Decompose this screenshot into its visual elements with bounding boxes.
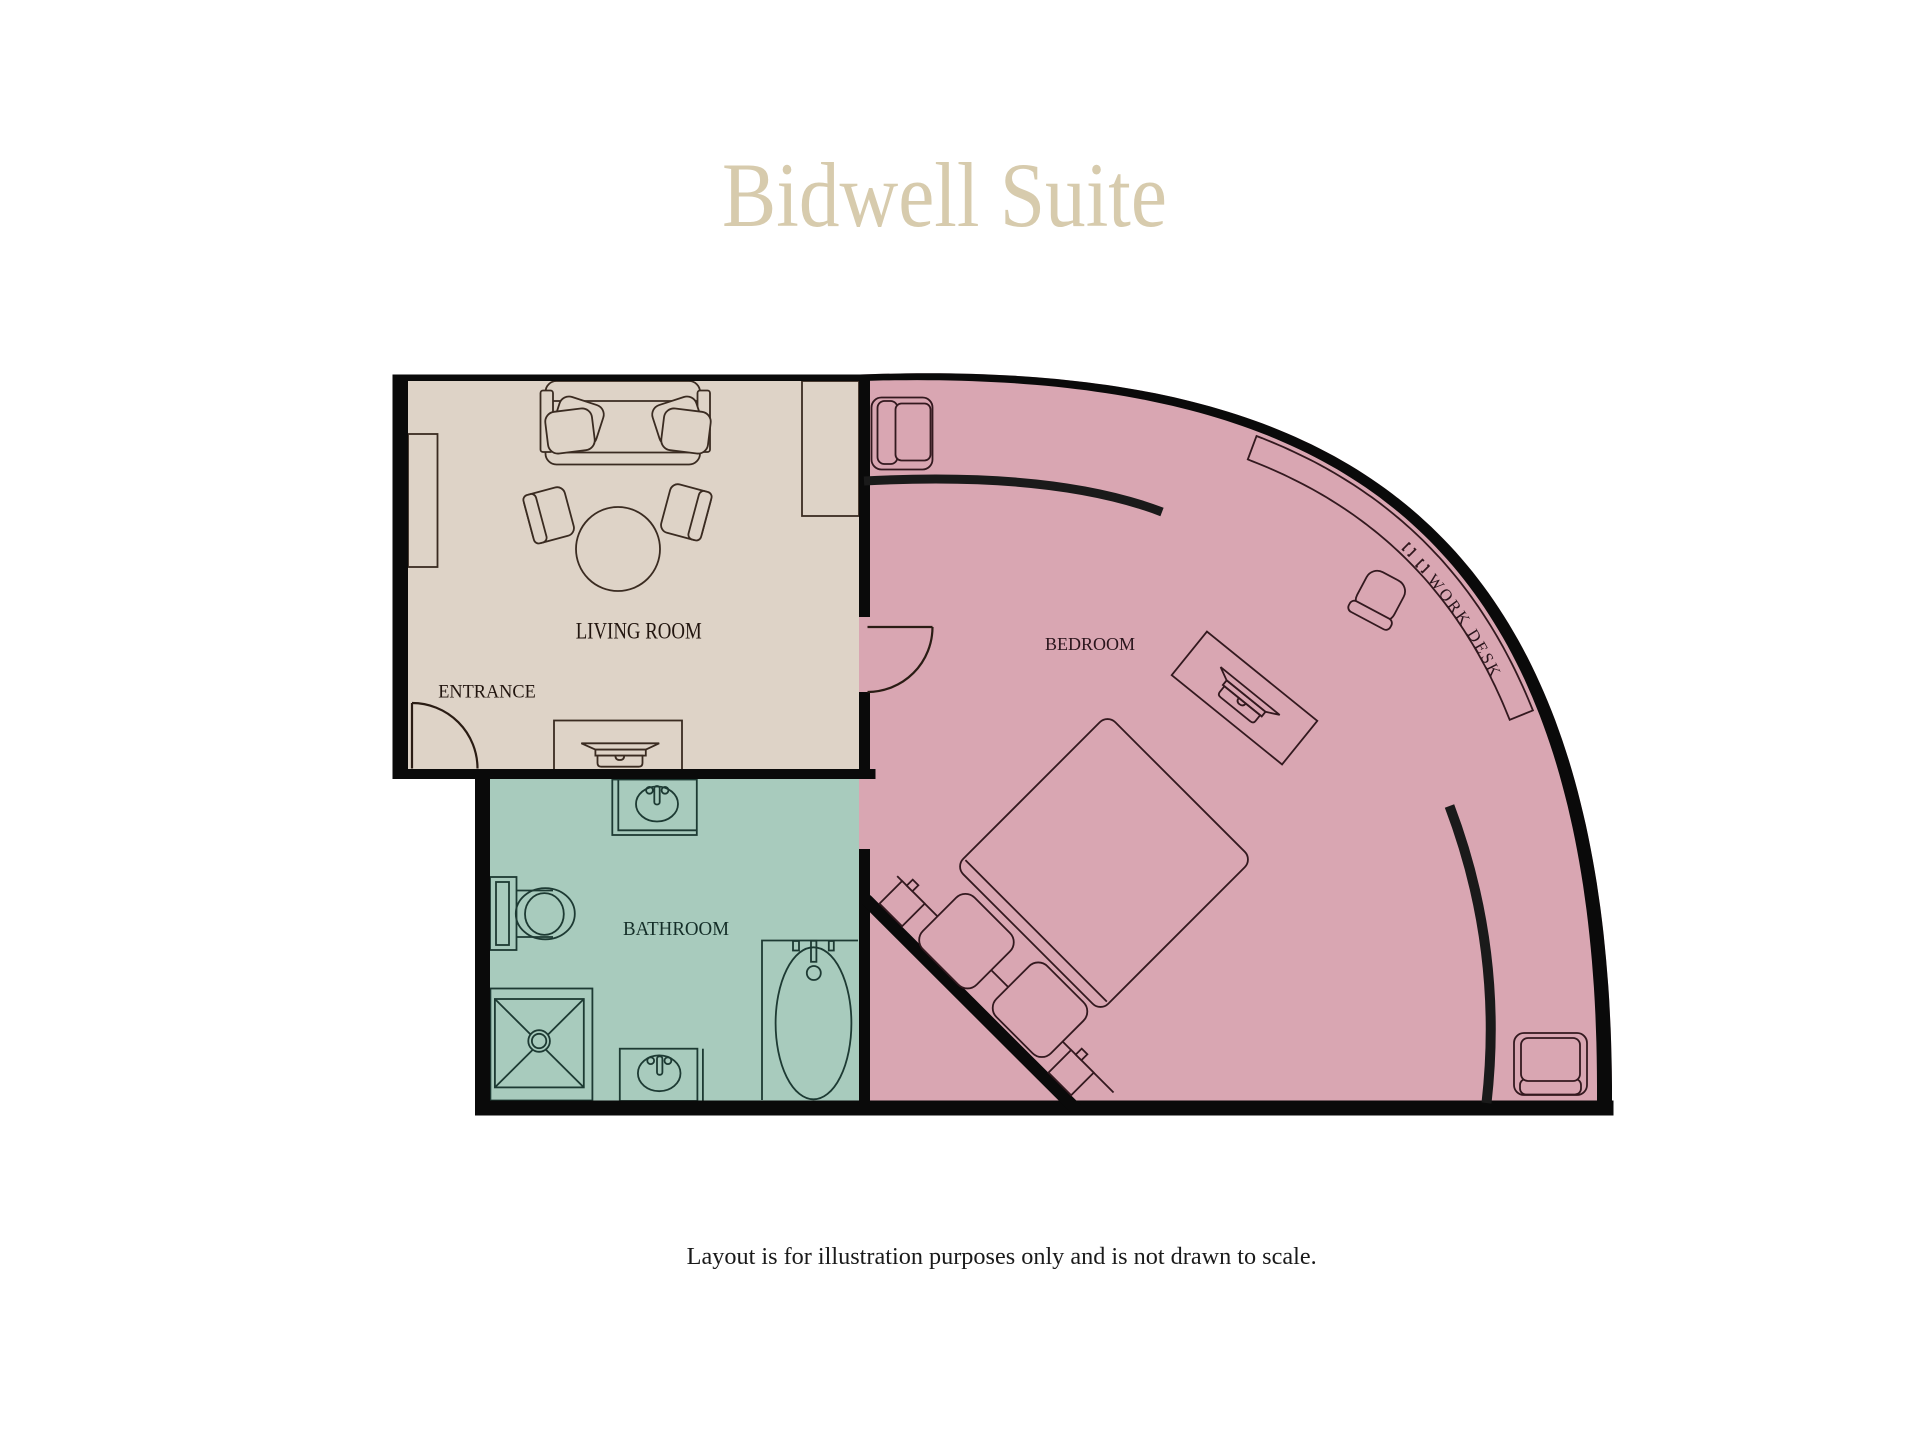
svg-text:Layout is for illustration pur: Layout is for illustration purposes only…	[687, 1244, 1317, 1270]
svg-text:ENTRANCE: ENTRANCE	[438, 682, 536, 703]
svg-text:BATHROOM: BATHROOM	[623, 918, 729, 940]
svg-text:LIVING ROOM: LIVING ROOM	[576, 618, 702, 643]
svg-text:Bidwell Suite: Bidwell Suite	[722, 144, 1167, 246]
svg-text:BEDROOM: BEDROOM	[1045, 634, 1135, 654]
